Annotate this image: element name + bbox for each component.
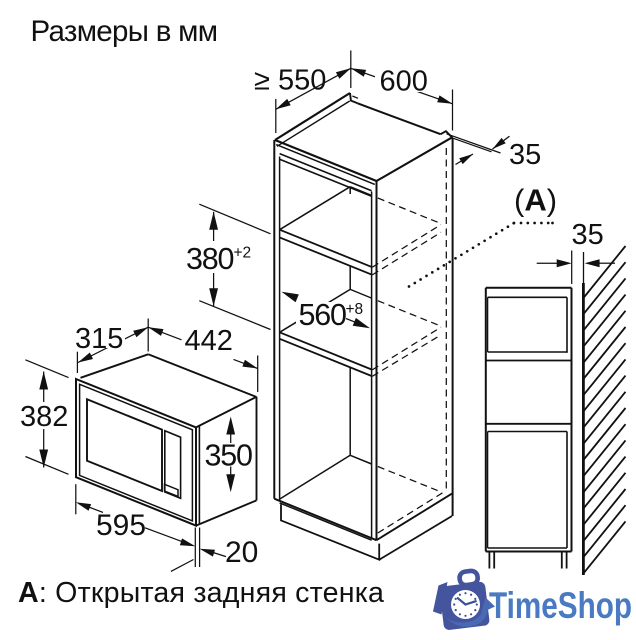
svg-text:35: 35 [509, 139, 541, 171]
svg-text:+2: +2 [234, 245, 252, 262]
svg-text:315: 315 [75, 323, 123, 355]
svg-text:+8: +8 [346, 301, 364, 318]
svg-text:А: Открытая задняя стенка: А: Открытая задняя стенка [18, 577, 384, 609]
svg-text:TimeShop: TimeShop [489, 585, 632, 626]
svg-text:350: 350 [205, 439, 253, 473]
svg-text:560: 560 [299, 298, 347, 332]
svg-text:380: 380 [186, 242, 234, 276]
svg-text:595: 595 [96, 509, 146, 542]
svg-text:35: 35 [572, 219, 604, 251]
svg-text:≥ 550: ≥ 550 [254, 65, 326, 97]
svg-text:Размеры в мм: Размеры в мм [31, 15, 218, 48]
svg-text:382: 382 [20, 401, 68, 433]
svg-text:600: 600 [380, 66, 428, 98]
svg-text:(A): (A) [514, 183, 557, 218]
svg-text:442: 442 [185, 325, 233, 357]
svg-text:20: 20 [225, 536, 258, 569]
